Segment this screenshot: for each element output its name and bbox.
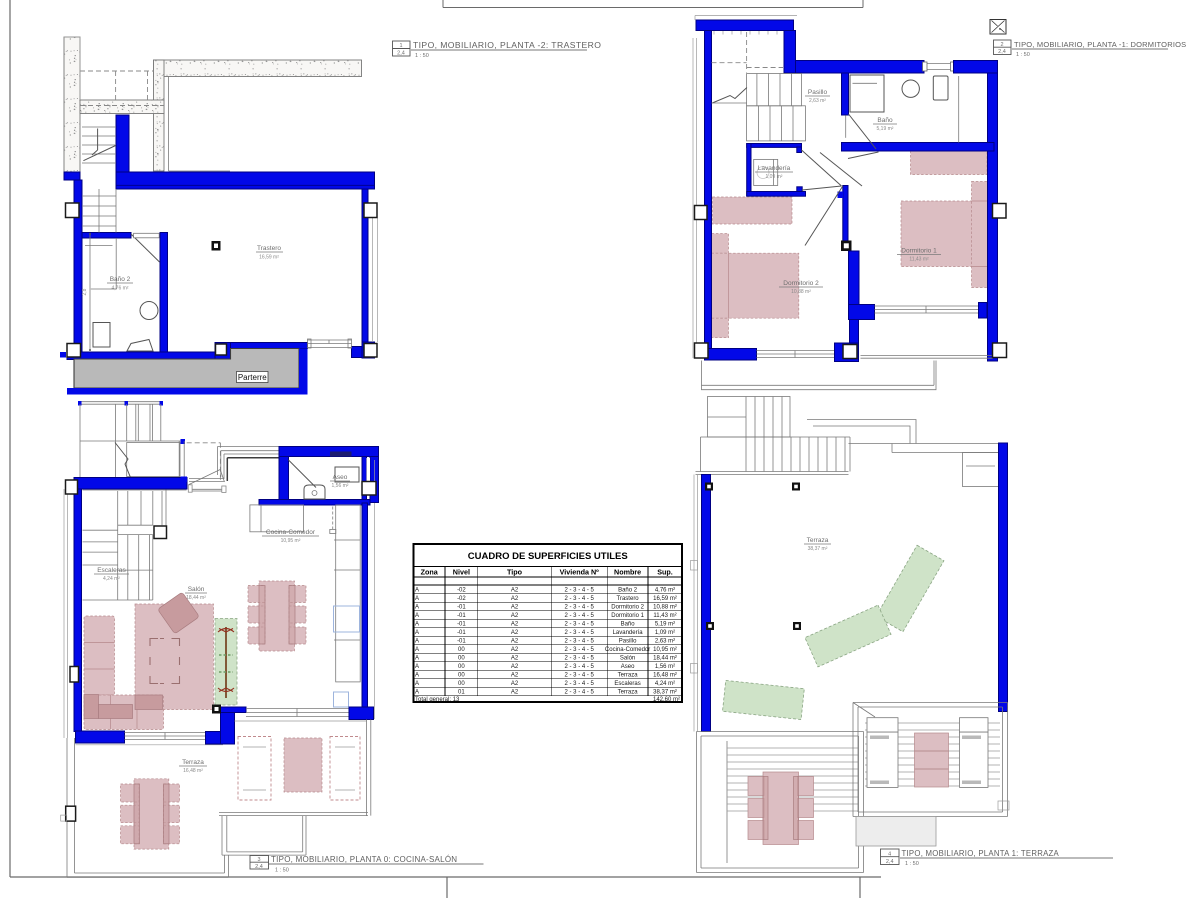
svg-text:Terraza: Terraza [807, 537, 829, 544]
svg-text:Tipo: Tipo [507, 568, 523, 577]
svg-text:Total general: 13: Total general: 13 [415, 697, 460, 703]
svg-text:A2: A2 [511, 664, 519, 670]
svg-text:Aseo: Aseo [621, 664, 635, 670]
svg-text:10,88 m²: 10,88 m² [791, 289, 811, 295]
svg-text:2 - 3 - 4 - 5: 2 - 3 - 4 - 5 [565, 673, 595, 679]
svg-text:Aseo: Aseo [333, 474, 348, 481]
svg-text:A2: A2 [511, 673, 519, 679]
svg-text:2 - 3 - 4 - 5: 2 - 3 - 4 - 5 [565, 647, 595, 653]
svg-text:Baño 2: Baño 2 [618, 588, 638, 594]
svg-text:Baño 2: Baño 2 [110, 276, 131, 283]
svg-text:2,4: 2,4 [255, 864, 263, 870]
svg-text:A2: A2 [511, 622, 519, 628]
svg-text:2 - 3 - 4 - 5: 2 - 3 - 4 - 5 [565, 639, 595, 645]
svg-text:Terraza: Terraza [618, 673, 639, 679]
svg-text:1,09 m²: 1,09 m² [766, 174, 783, 180]
svg-text:2,8: 2,8 [82, 288, 88, 295]
svg-text:01: 01 [458, 690, 465, 696]
svg-text:2,63 m²: 2,63 m² [655, 639, 675, 645]
svg-text:2: 2 [1000, 42, 1003, 48]
svg-text:Parterre: Parterre [238, 373, 267, 382]
svg-text:2 - 3 - 4 - 5: 2 - 3 - 4 - 5 [565, 605, 595, 611]
svg-text:4,76 m²: 4,76 m² [655, 588, 675, 594]
svg-text:4: 4 [888, 852, 891, 858]
svg-text:A: A [415, 588, 419, 594]
svg-text:2 - 3 - 4 - 5: 2 - 3 - 4 - 5 [565, 664, 595, 670]
svg-text:TIPO, MOBILIARIO, PLANTA -2: T: TIPO, MOBILIARIO, PLANTA -2: TRASTERO [413, 40, 601, 50]
svg-text:16,48 m²: 16,48 m² [183, 768, 203, 774]
svg-text:-01: -01 [457, 622, 466, 628]
svg-text:00: 00 [458, 664, 465, 670]
svg-text:2 - 3 - 4 - 5: 2 - 3 - 4 - 5 [565, 588, 595, 594]
svg-text:A2: A2 [511, 605, 519, 611]
svg-text:A: A [415, 647, 419, 653]
svg-text:2 - 3 - 4 - 5: 2 - 3 - 4 - 5 [565, 656, 595, 662]
svg-text:11,43 m²: 11,43 m² [909, 257, 929, 263]
svg-text:1 : 50: 1 : 50 [275, 868, 289, 874]
svg-text:Pasillo: Pasillo [808, 89, 828, 96]
svg-text:Cocina-Comedor: Cocina-Comedor [605, 647, 650, 653]
svg-text:00: 00 [458, 647, 465, 653]
svg-text:Dormitorio 2: Dormitorio 2 [611, 605, 644, 611]
svg-text:Trastero: Trastero [617, 596, 640, 602]
svg-text:A: A [415, 596, 419, 602]
svg-text:TIPO, MOBILIARIO, PLANTA 1: TE: TIPO, MOBILIARIO, PLANTA 1: TERRAZA [902, 849, 1060, 858]
svg-text:142,60 m²: 142,60 m² [653, 697, 680, 703]
svg-text:A: A [415, 656, 419, 662]
svg-text:Dormitorio 2: Dormitorio 2 [783, 280, 819, 287]
svg-text:00: 00 [458, 673, 465, 679]
svg-text:-02: -02 [457, 588, 466, 594]
svg-text:A: A [415, 681, 419, 687]
svg-text:Sup.: Sup. [657, 568, 673, 577]
svg-text:1: 1 [399, 43, 402, 49]
svg-text:A2: A2 [511, 690, 519, 696]
svg-text:2 - 3 - 4 - 5: 2 - 3 - 4 - 5 [565, 622, 595, 628]
svg-text:Dormitorio 1: Dormitorio 1 [901, 248, 937, 255]
svg-text:-01: -01 [457, 605, 466, 611]
svg-text:1,09 m²: 1,09 m² [655, 630, 675, 636]
svg-text:Vivienda Nº: Vivienda Nº [560, 568, 600, 577]
svg-text:2,63 m²: 2,63 m² [809, 98, 826, 104]
svg-text:10,95 m²: 10,95 m² [281, 538, 301, 544]
svg-text:A2: A2 [511, 681, 519, 687]
svg-text:A2: A2 [511, 630, 519, 636]
svg-text:2 - 3 - 4 - 5: 2 - 3 - 4 - 5 [565, 596, 595, 602]
svg-text:4,24 m²: 4,24 m² [655, 681, 675, 687]
svg-text:Cocina-Comedor: Cocina-Comedor [266, 529, 316, 536]
svg-text:Nivel: Nivel [453, 568, 470, 577]
svg-text:A: A [415, 639, 419, 645]
svg-text:Baño: Baño [621, 622, 636, 628]
svg-text:Terraza: Terraza [618, 690, 639, 696]
svg-text:Salón: Salón [620, 656, 635, 662]
svg-text:2 - 3 - 4 - 5: 2 - 3 - 4 - 5 [565, 681, 595, 687]
svg-text:Salón: Salón [188, 586, 205, 593]
svg-text:16,48 m²: 16,48 m² [653, 673, 677, 679]
svg-text:18,44 m²: 18,44 m² [186, 595, 206, 601]
svg-text:A: A [415, 622, 419, 628]
svg-text:Trastero: Trastero [257, 245, 281, 252]
svg-text:38,37 m²: 38,37 m² [653, 690, 677, 696]
svg-text:00: 00 [458, 681, 465, 687]
svg-text:4,24 m²: 4,24 m² [103, 576, 120, 582]
svg-text:38,37 m²: 38,37 m² [808, 546, 828, 552]
svg-text:TIPO, MOBILIARIO, PLANTA -1: D: TIPO, MOBILIARIO, PLANTA -1: DORMITORIOS [1014, 40, 1186, 49]
svg-text:-01: -01 [457, 639, 466, 645]
svg-text:-01: -01 [457, 630, 466, 636]
svg-text:2,4: 2,4 [998, 49, 1006, 55]
svg-text:A2: A2 [511, 588, 519, 594]
svg-text:A2: A2 [511, 647, 519, 653]
svg-text:10,88 m²: 10,88 m² [653, 605, 677, 611]
svg-text:-01: -01 [457, 613, 466, 619]
svg-text:18,44 m²: 18,44 m² [653, 656, 677, 662]
svg-text:4,76 m²: 4,76 m² [112, 286, 129, 292]
svg-text:2 - 3 - 4 - 5: 2 - 3 - 4 - 5 [565, 690, 595, 696]
svg-text:Nombre: Nombre [614, 568, 641, 577]
svg-text:3: 3 [257, 857, 260, 863]
svg-text:1,56 m²: 1,56 m² [655, 664, 675, 670]
svg-text:A: A [415, 664, 419, 670]
svg-text:A: A [415, 630, 419, 636]
svg-text:A2: A2 [511, 613, 519, 619]
svg-text:2,4: 2,4 [886, 859, 894, 865]
svg-text:Terraza: Terraza [182, 759, 204, 766]
svg-text:-02: -02 [457, 596, 466, 602]
svg-text:Zona: Zona [421, 568, 439, 577]
svg-text:2,4: 2,4 [397, 51, 405, 57]
svg-text:2 - 3 - 4 - 5: 2 - 3 - 4 - 5 [565, 630, 595, 636]
svg-text:5,19 m²: 5,19 m² [655, 622, 675, 628]
svg-text:2 - 3 - 4 - 5: 2 - 3 - 4 - 5 [565, 613, 595, 619]
svg-text:1 : 50: 1 : 50 [415, 53, 429, 59]
svg-text:A: A [415, 690, 419, 696]
svg-text:Pasillo: Pasillo [619, 639, 637, 645]
svg-text:00: 00 [458, 656, 465, 662]
svg-text:16,59 m²: 16,59 m² [653, 596, 677, 602]
svg-text:Escaleras: Escaleras [614, 681, 640, 687]
svg-text:CUADRO DE SUPERFICIES UTILES: CUADRO DE SUPERFICIES UTILES [468, 551, 628, 562]
svg-text:1 : 50: 1 : 50 [905, 861, 919, 867]
svg-text:10,95 m²: 10,95 m² [653, 647, 677, 653]
svg-text:A2: A2 [511, 639, 519, 645]
svg-text:1,56 m²: 1,56 m² [332, 483, 349, 489]
svg-text:A2: A2 [511, 596, 519, 602]
svg-text:A: A [415, 605, 419, 611]
svg-text:A: A [415, 673, 419, 679]
svg-text:Baño: Baño [877, 117, 893, 124]
svg-text:Dormitorio 1: Dormitorio 1 [611, 613, 644, 619]
svg-text:11,43 m²: 11,43 m² [653, 613, 676, 619]
svg-text:Escaleras: Escaleras [97, 567, 126, 574]
svg-text:A: A [415, 613, 419, 619]
svg-text:Lavandería: Lavandería [613, 630, 644, 636]
svg-text:A2: A2 [511, 656, 519, 662]
svg-text:Lavandería: Lavandería [758, 165, 791, 172]
svg-text:5,19 m²: 5,19 m² [877, 126, 894, 132]
svg-text:TIPO, MOBILIARIO, PLANTA 0: CO: TIPO, MOBILIARIO, PLANTA 0: COCINA-SALÓN [271, 855, 457, 864]
svg-text:1 : 50: 1 : 50 [1016, 52, 1030, 58]
svg-text:16,59 m²: 16,59 m² [259, 255, 279, 261]
